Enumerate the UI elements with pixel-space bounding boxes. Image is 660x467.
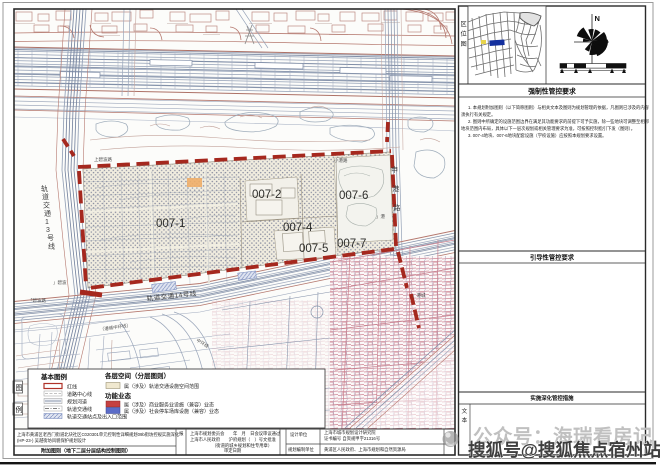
svg-text:功能业态: 功能业态 xyxy=(105,391,132,400)
svg-text:（街道的城乡规划和住专用章）: （街道的城乡规划和住专用章） xyxy=(212,442,272,449)
svg-text:上海市人民政府 沪府规划（ ）号文批准: 上海市人民政府 沪府规划（ ）号文批准 xyxy=(190,436,277,443)
svg-text:设计单位: 设计单位 xyxy=(290,431,308,438)
svg-text:轨道交通线: 轨道交通线 xyxy=(67,406,92,413)
svg-text:基本图例: 基本图例 xyxy=(40,372,68,381)
svg-text:007-5: 007-5 xyxy=(299,243,328,255)
svg-text:审定日期: 审定日期 xyxy=(224,447,241,454)
svg-text:须执行有关规定。: 须执行有关规定。 xyxy=(461,111,495,118)
svg-text:强制性管控要求: 强制性管控要求 xyxy=(528,87,576,96)
svg-text:」港城: 」港城 xyxy=(412,292,426,299)
svg-text:实施深化管控措施: 实施深化管控措施 xyxy=(530,394,574,402)
svg-text:报: 报 xyxy=(179,430,184,437)
svg-text:图: 图 xyxy=(16,384,23,392)
svg-text:N: N xyxy=(595,14,600,23)
svg-text:属（涉及）商业服务业设施（兼容）业态: 属（涉及）商业服务业设施（兼容）业态 xyxy=(124,402,214,409)
svg-text:007-4: 007-4 xyxy=(283,222,313,234)
svg-text:上海市规划委员会 年 月 日会议审议通过: 上海市规划委员会 年 月 日会议审议通过 xyxy=(190,430,281,437)
svg-text:属（涉及）轨道交通设施空间范围: 属（涉及）轨道交通设施空间范围 xyxy=(124,383,199,390)
svg-text:上碧波路: 上碧波路 xyxy=(94,156,112,163)
svg-text:各层空间（分层图则）: 各层空间（分层图则） xyxy=(104,371,170,380)
svg-text:地块范围内布局，具体以下一层次规划或相关管理要求为准，可按照: 地块范围内布局，具体以下一层次规划或相关管理要求为准，可按照控制指引下发（图则）… xyxy=(461,125,635,132)
svg-text:1. 本规划附加图则（以下简称图则）与相关文本及图则为规划管: 1. 本规划附加图则（以下简称图则）与相关文本及图则为规划管理的依据，凡图则已涉… xyxy=(468,104,650,111)
svg-text:规划编制单位: 规划编制单位 xyxy=(288,446,314,453)
svg-text:属（涉及）社会停车场库设施（兼容）业态: 属（涉及）社会停车场库设施（兼容）业态 xyxy=(124,408,219,415)
svg-text:证书编号 自资规甲字21316号: 证书编号 自资规甲字21316号 xyxy=(324,435,380,442)
svg-text:引导性管控要求: 引导性管控要求 xyxy=(530,253,575,262)
svg-text:(HP-23-) 吴越街坊风貌保护规划设计: (HP-23-) 吴越街坊风貌保护规划设计 xyxy=(17,437,87,444)
svg-text:例: 例 xyxy=(16,405,23,414)
svg-text:007-7: 007-7 xyxy=(337,238,366,250)
svg-text:」碧波: 」碧波 xyxy=(53,279,67,286)
svg-text:「碧波路: 「碧波路 xyxy=(28,297,46,304)
svg-text:搜狐号@搜狐焦点宿州站: 搜狐号@搜狐焦点宿州站 xyxy=(468,440,660,460)
svg-text:规划河道: 规划河道 xyxy=(67,399,87,406)
svg-text:黄浦区人民政府、上海市规划和自然资源局: 黄浦区人民政府、上海市规划和自然资源局 xyxy=(324,446,406,453)
svg-text:道路中心线: 道路中心线 xyxy=(67,391,92,398)
svg-text:上海市城市规划设计研究院: 上海市城市规划设计研究院 xyxy=(324,429,376,436)
svg-text:3. 007-4地块、007-6地块配套设施（学校设施）应按: 3. 007-4地块、007-6地块配套设施（学校设施）应按照本规划要求设置。 xyxy=(468,132,606,139)
svg-text:007-1: 007-1 xyxy=(156,218,185,230)
svg-text:上海市黄浦区老西门街道北块社区C020301单元控制性详细规: 上海市黄浦区老西门街道北块社区C020301单元控制性详细规划09b街坊控规实施… xyxy=(17,431,180,438)
svg-text:附加图则（地下二层分层结构控制图则）: 附加图则（地下二层分层结构控制图则） xyxy=(41,448,131,455)
svg-text:区位图: 区位图 xyxy=(461,21,467,48)
svg-text:轨道交通站点及出入口范围: 轨道交通站点及出入口范围 xyxy=(67,414,127,421)
svg-text:007-2: 007-2 xyxy=(252,189,281,201)
svg-text:红线: 红线 xyxy=(67,384,77,391)
svg-text:」港: 」港 xyxy=(376,213,385,220)
svg-text:2. 图则中所确定的设施范围边界在满足其功能要求的前提下可予: 2. 图则中所确定的设施范围边界在满足其功能要求的前提下可予实施，除一些地块可调… xyxy=(468,118,650,125)
svg-text:007-6: 007-6 xyxy=(339,190,368,202)
svg-text:小港路: 小港路 xyxy=(334,157,348,164)
